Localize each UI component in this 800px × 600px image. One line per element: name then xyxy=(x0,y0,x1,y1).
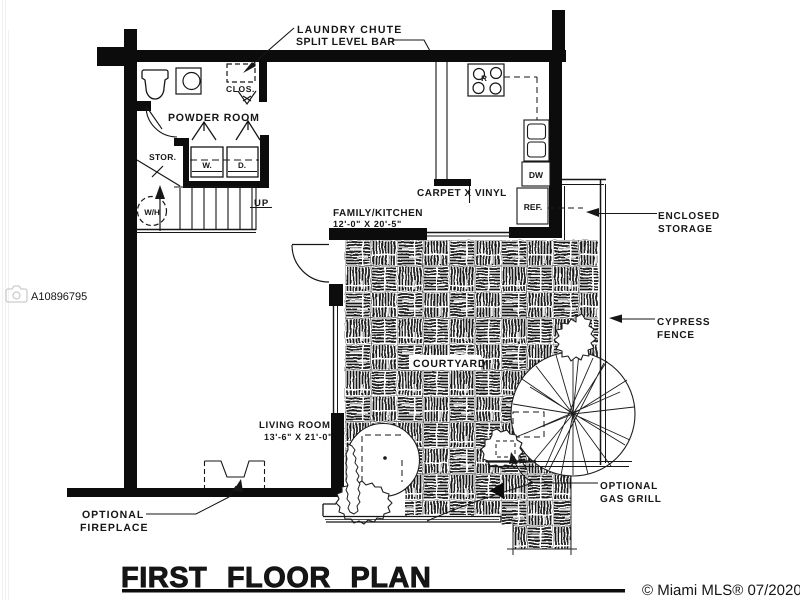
svg-text:W/H: W/H xyxy=(144,208,160,217)
svg-text:STOR.: STOR. xyxy=(149,152,176,162)
svg-text:© Miami MLS® 07/2020: © Miami MLS® 07/2020 xyxy=(642,582,800,599)
svg-text:LAUNDRY CHUTE: LAUNDRY CHUTE xyxy=(297,24,402,36)
svg-text:R: R xyxy=(481,74,487,83)
svg-text:LIVING ROOM: LIVING ROOM xyxy=(259,420,331,431)
svg-text:POWDER ROOM: POWDER ROOM xyxy=(168,112,260,124)
svg-text:CLOS.: CLOS. xyxy=(226,84,255,94)
svg-text:SPLIT LEVEL BAR: SPLIT LEVEL BAR xyxy=(296,36,395,48)
svg-text:ENCLOSED: ENCLOSED xyxy=(658,211,720,222)
svg-text:FENCE: FENCE xyxy=(657,330,695,341)
svg-text:STORAGE: STORAGE xyxy=(658,224,713,235)
svg-text:FIREPLACE: FIREPLACE xyxy=(80,522,149,534)
svg-text:COURTYARD: COURTYARD xyxy=(413,358,486,370)
svg-text:OPTIONAL: OPTIONAL xyxy=(600,481,658,492)
svg-text:12'-0" X 20'-5": 12'-0" X 20'-5" xyxy=(333,219,402,229)
svg-text:CYPRESS: CYPRESS xyxy=(657,317,710,328)
svg-text:DW: DW xyxy=(529,170,544,180)
svg-text:FAMILY/KITCHEN: FAMILY/KITCHEN xyxy=(333,208,423,219)
svg-text:W.: W. xyxy=(202,161,211,170)
svg-text:OPTIONAL: OPTIONAL xyxy=(82,509,144,521)
svg-text:GAS GRILL: GAS GRILL xyxy=(600,494,662,505)
svg-text:D.: D. xyxy=(238,161,246,170)
svg-text:REF.: REF. xyxy=(524,202,542,212)
svg-text:A10896795: A10896795 xyxy=(31,291,87,303)
svg-text:13'-6" X 21'-0": 13'-6" X 21'-0" xyxy=(264,432,333,442)
svg-text:CARPET X VINYL: CARPET X VINYL xyxy=(417,188,507,199)
